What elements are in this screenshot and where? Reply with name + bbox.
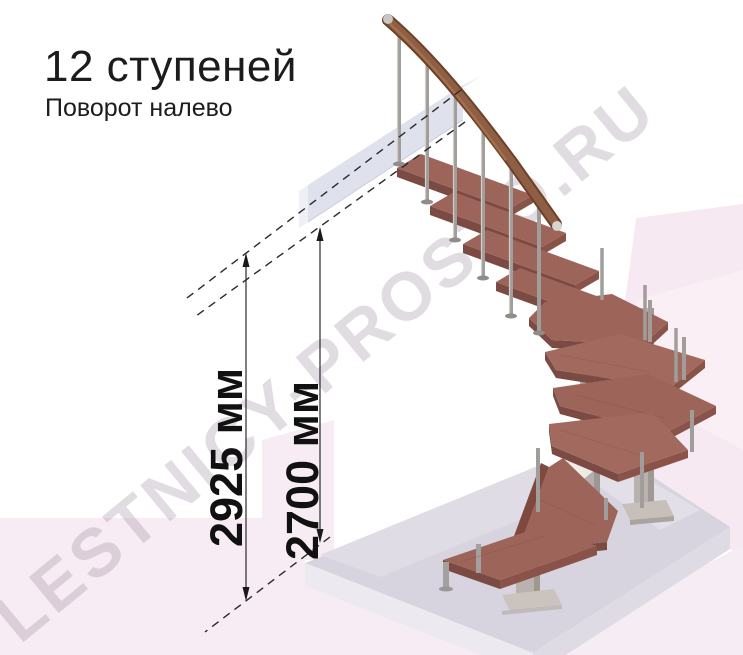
dimension-label-2700: 2700 мм <box>277 381 328 560</box>
staircase-diagram: LESTNICY-PROSTO.RU <box>0 0 743 655</box>
handrail-end-cap <box>552 221 562 231</box>
page-subtitle: Поворот налево <box>45 94 233 123</box>
handrail-top-cap <box>383 14 393 24</box>
dimension-label-2925: 2925 мм <box>201 368 252 547</box>
page-title: 12 ступеней <box>44 42 297 92</box>
